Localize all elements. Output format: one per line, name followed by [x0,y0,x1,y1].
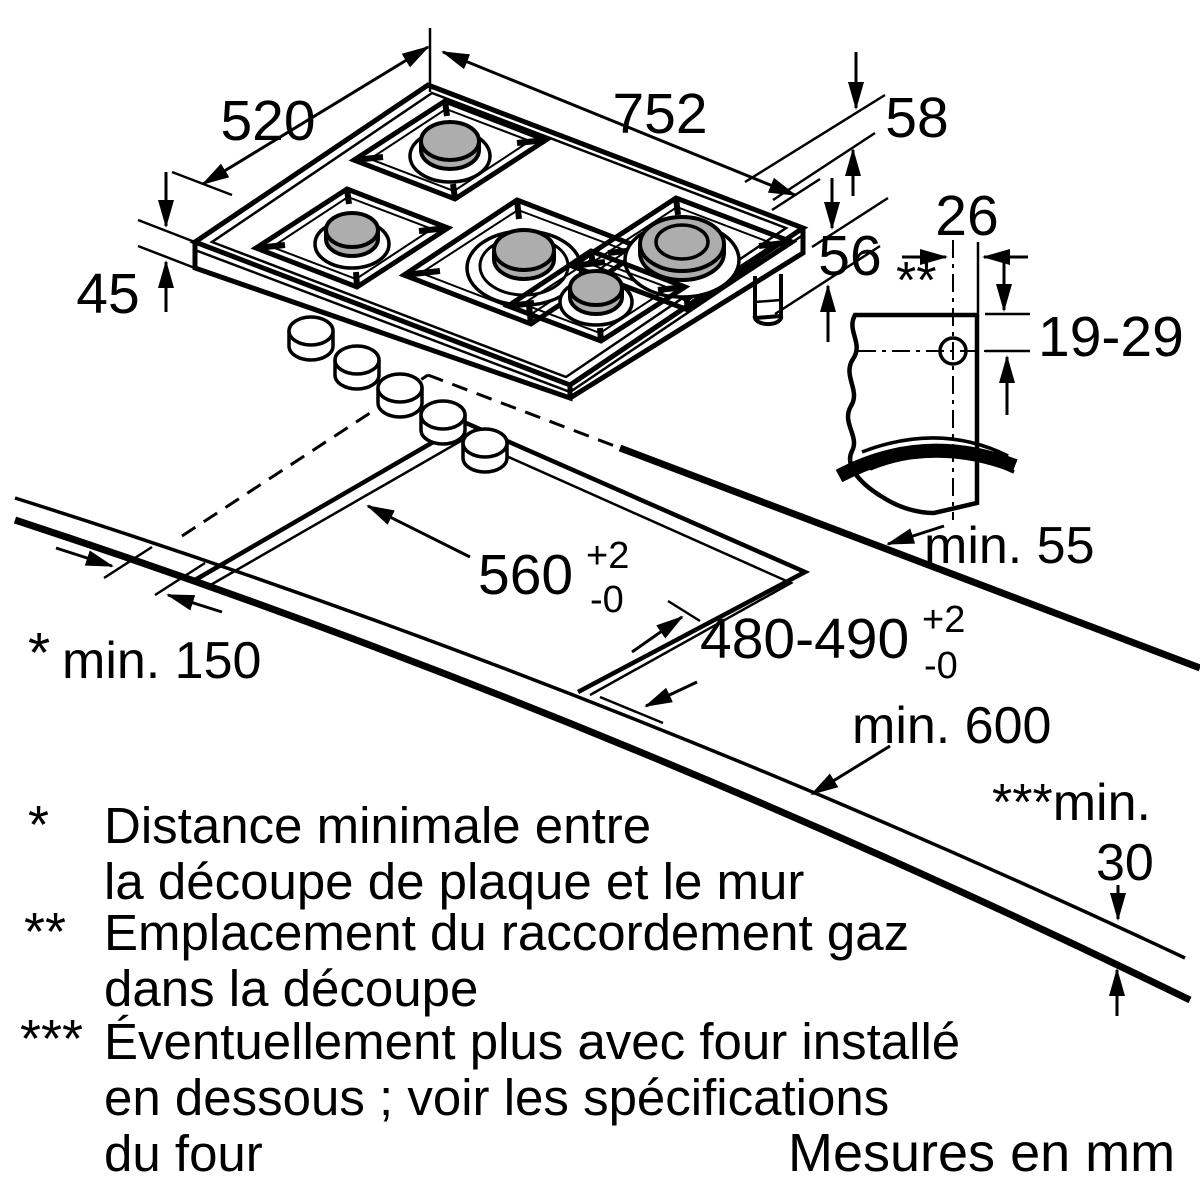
pipe-end [755,316,781,324]
knob-top [463,429,507,457]
burner-cap [570,271,622,305]
footnote-marker: * [28,798,49,852]
knob [289,317,333,360]
dim-label-480-tol-up: +2 [922,599,965,641]
pipe-joint [755,300,781,302]
clearance-marker-star: * [28,621,50,685]
dim-label-480-tol-down: -0 [924,645,958,687]
footnote-line: Distance minimale entre [104,800,651,851]
knob-top [378,374,422,402]
arrow-left [168,595,222,612]
knob [378,374,422,417]
dim-label-58: 58 [885,86,948,150]
footnote-line: dans la découpe [104,963,478,1014]
dim-label-560-tol-up: +2 [586,535,629,577]
clearance-label-min30-value: 30 [1096,834,1154,892]
dim-label-752: 752 [612,82,707,146]
dim-label-520: 520 [220,89,315,153]
extension-tick [985,314,1030,351]
burner-cap [326,213,378,247]
extension-tick [172,172,232,195]
footnote-line: Éventuellement plus avec four installé [104,1016,960,1067]
clearance-label-min55: min. 55 [924,517,1095,575]
dim-label-26: 26 [935,184,998,248]
dim-label-560: 560 [478,543,573,607]
burner-cap [494,230,554,270]
knob [421,401,465,444]
gas-detail-marker: ** [896,252,936,310]
knob-top [421,401,465,429]
burner-cap [421,122,479,160]
knob [463,429,507,472]
dim-label-19-29: 19-29 [1038,305,1184,369]
dim-label-560-tol-down: -0 [590,579,624,621]
arrow-to-edge [368,506,470,557]
unit-note: Mesures en mm [788,1126,1175,1180]
clearance-label-min600: min. 600 [852,697,1051,755]
dim-label-56: 56 [818,224,881,288]
dim-min-55: min. 55 [888,517,1095,575]
extension-tick [138,220,200,270]
installation-diagram-page: 520 752 45 58 56 [0,0,1200,1200]
footnote-line: Emplacement du raccordement gaz [104,907,909,958]
knob-top [335,346,379,374]
clearance-label-min30-prefix: ***min. [992,774,1151,832]
clearance-label-min150: min. 150 [62,632,261,690]
knob-top [289,317,333,345]
dim-26: 26 ** [896,184,1028,313]
dim-cutout-560: 560 +2 -0 [368,506,629,621]
footnote-line: la découpe de plaque et le mur [104,856,804,907]
footnote-marker: *** [20,1012,83,1066]
arrow-down-left [646,682,697,706]
footnote-line: du four [104,1128,263,1179]
dim-58: 58 [745,52,949,200]
dim-label-480-490: 480-490 [700,607,909,671]
dim-height-45: 45 [76,172,200,326]
knob [335,346,379,389]
dim-19-29: 19-29 [985,260,1184,415]
dim-min-30: ***min. 30 [992,774,1154,1016]
footnote-marker: ** [24,905,66,959]
dim-label-45: 45 [76,262,139,326]
footnote-line: en dessous ; voir les spécifications [104,1072,889,1123]
